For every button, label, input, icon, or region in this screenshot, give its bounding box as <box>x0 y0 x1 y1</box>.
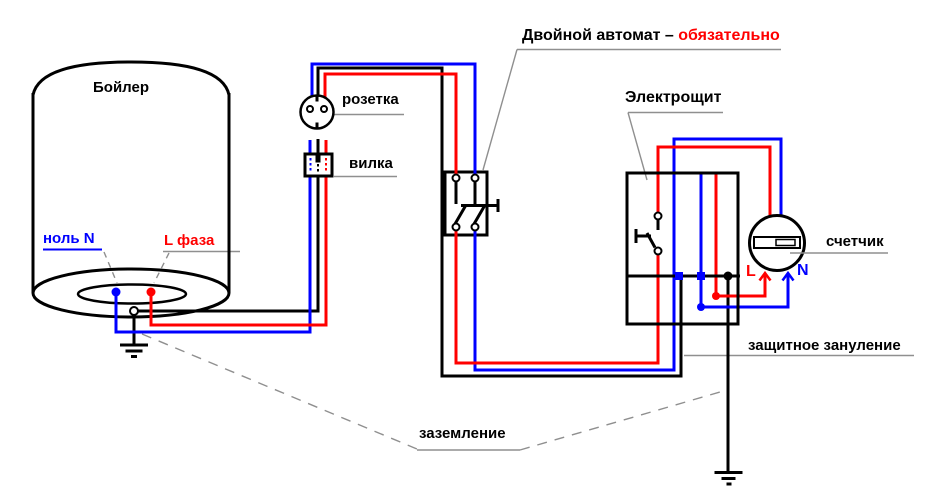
diagram-canvas <box>0 0 933 495</box>
ground-wires <box>134 68 728 471</box>
earth-symbol-panel <box>715 473 743 485</box>
panel-switch <box>636 213 662 255</box>
neutral-terminal-leader <box>104 252 117 283</box>
meter-display <box>754 237 800 248</box>
breaker-terminal-top-right <box>472 175 479 182</box>
boiler-neutral-terminal <box>112 288 121 297</box>
breaker-terminal-bottom-left <box>453 224 460 231</box>
plug-label: вилка <box>349 156 393 173</box>
boiler-terminal-recess <box>78 285 186 304</box>
socket-label: розетка <box>342 92 399 109</box>
boiler-phase-terminal <box>147 288 156 297</box>
meter-label: счетчик <box>826 234 884 251</box>
breaker-note-leader <box>483 50 517 171</box>
protective-ground-label: защитное зануление <box>748 338 901 355</box>
boiler-sides <box>33 93 229 293</box>
earth-symbol-boiler <box>120 345 148 357</box>
bus-tap-neutral <box>697 272 705 280</box>
socket-hole-left <box>307 106 313 112</box>
plug-symbol <box>305 154 332 176</box>
boiler-symbol <box>33 62 229 317</box>
wiring-diagram: Двойной автомат – обязательно Бойлер роз… <box>0 0 933 495</box>
breaker-note: Двойной автомат – обязательно <box>522 27 780 45</box>
meter-phase-in-label: L <box>746 263 756 281</box>
earth-leader-left <box>142 334 417 449</box>
neutral-wire-socket-to-breaker <box>312 64 475 175</box>
boiler-label: Бойлер <box>93 80 149 97</box>
earth-label: заземление <box>419 426 506 443</box>
breaker-terminal-top-left <box>453 175 460 182</box>
meter-neutral-in-label: N <box>797 262 809 280</box>
boiler-ground-terminal <box>130 307 138 315</box>
panel-switch-lever <box>636 229 655 248</box>
double-breaker-box <box>445 172 487 235</box>
breaker-note-black: Двойной автомат – <box>522 27 678 44</box>
socket-symbol <box>301 96 334 129</box>
neutral-supply-tap <box>697 303 705 311</box>
phase-supply-tap <box>712 292 720 300</box>
boiler-phase-label: L фаза <box>164 233 214 250</box>
panel-label-leader <box>628 113 647 181</box>
breaker-note-red: обязательно <box>678 27 780 44</box>
breaker-terminal-bottom-right <box>472 224 479 231</box>
connection-points <box>112 272 794 316</box>
socket-hole-right <box>321 106 327 112</box>
bus-tap-earth <box>724 272 733 281</box>
panel-label: Электрощит <box>625 89 721 107</box>
neutral-wire-boiler <box>116 177 310 332</box>
panel-switch-terminal-bottom <box>655 248 662 255</box>
boiler-neutral-label: ноль N <box>43 231 95 248</box>
panel-switch-terminal-top <box>655 213 662 220</box>
bus-tap-ground <box>675 272 683 280</box>
earth-leader-right <box>520 390 727 450</box>
phase-terminal-leader <box>154 253 169 283</box>
